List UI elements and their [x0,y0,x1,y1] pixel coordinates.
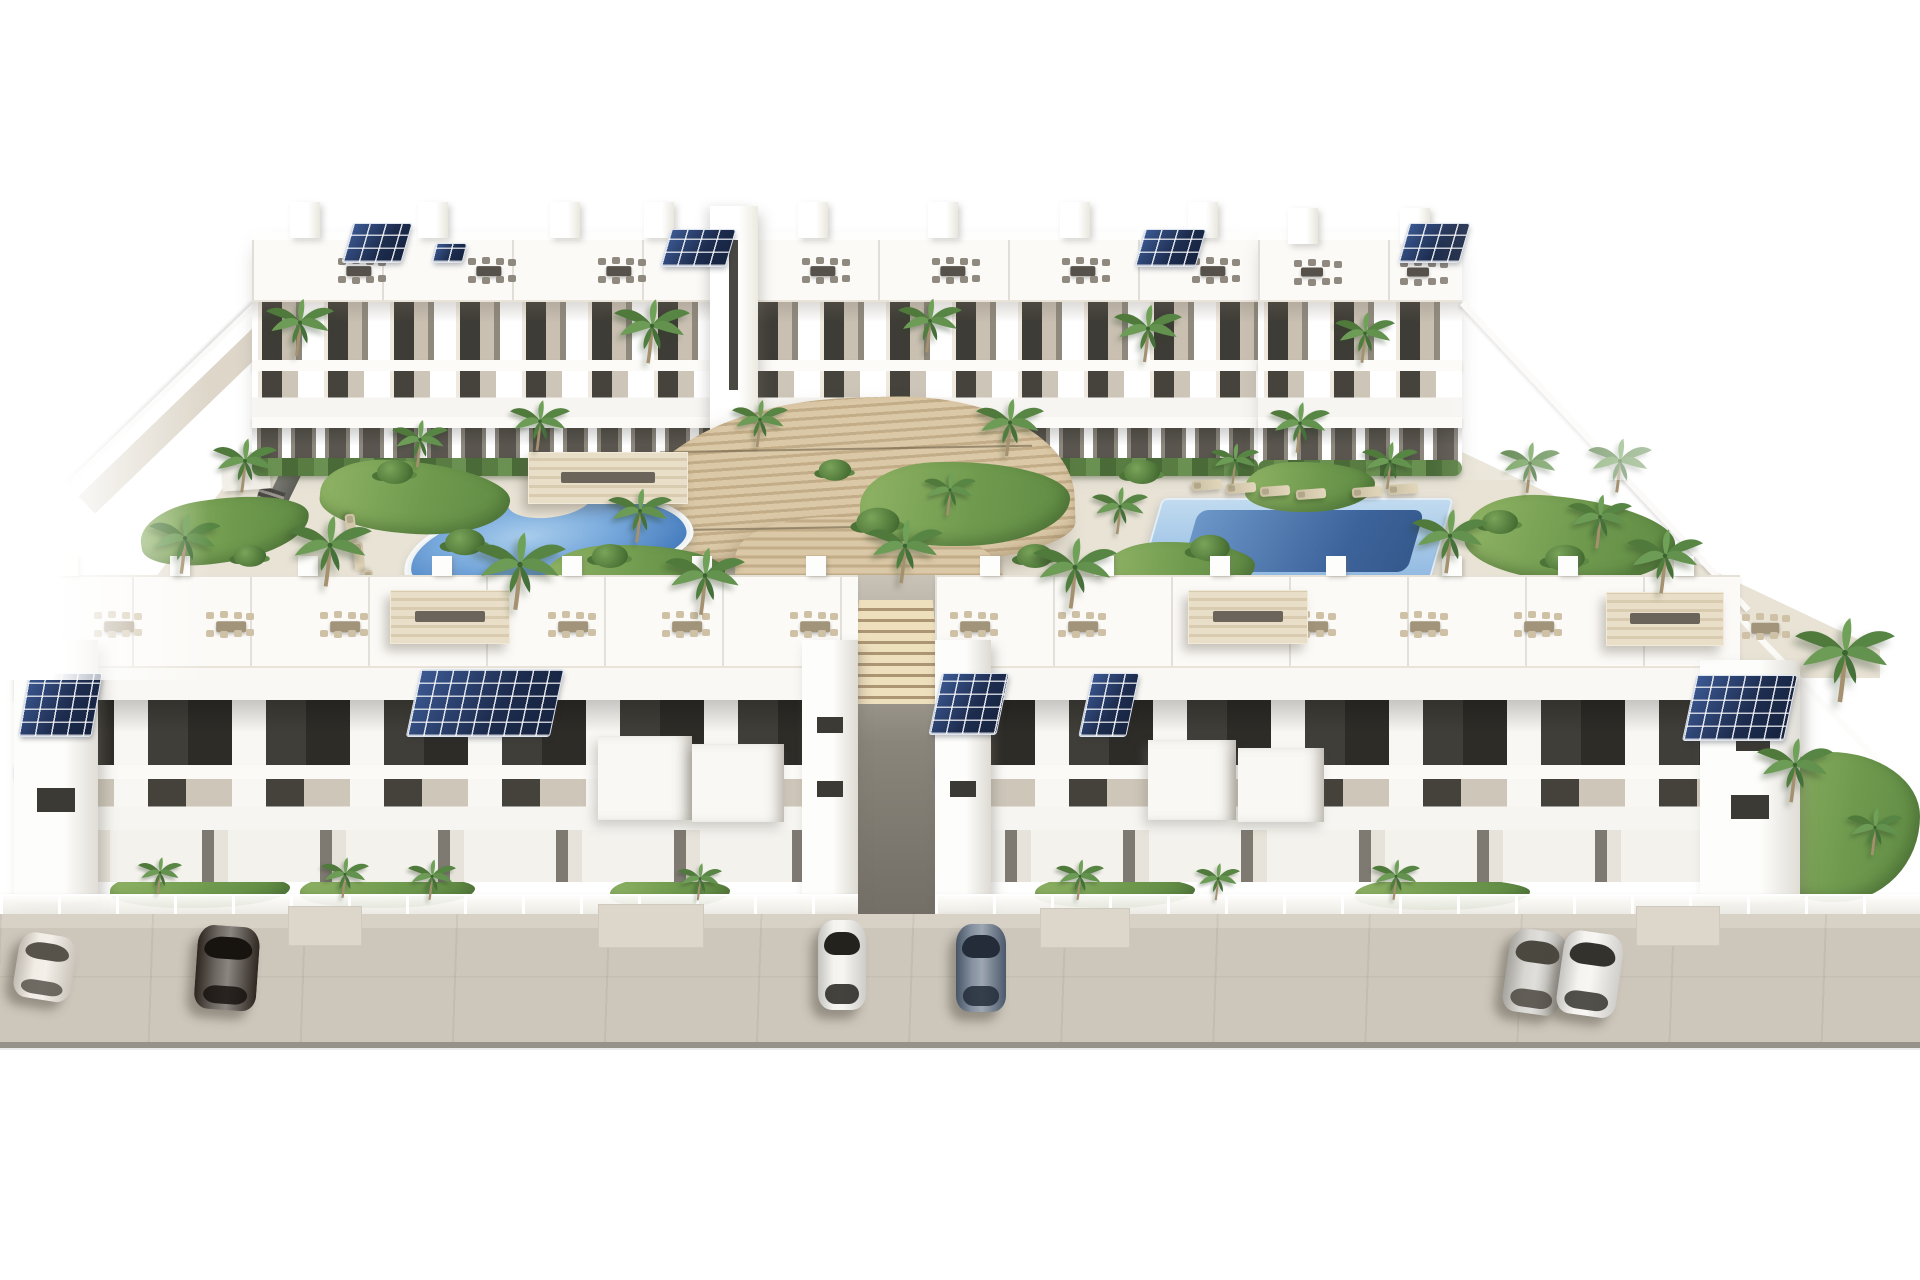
palm-tree [923,470,978,518]
palm-tree-icon [606,487,673,546]
palm-tree-icon [1210,442,1260,486]
palm-tree [974,397,1045,460]
alley-tower-left [802,640,858,912]
palm-tree [1334,311,1397,367]
lower-floor-balconies [935,779,1740,830]
parked-car [818,920,866,1010]
palm-tree [1371,858,1421,902]
terrace-dining-set [1398,612,1452,642]
solar-panel-array [407,670,563,736]
parked-car [11,930,79,1004]
terrace-dining-set [800,258,846,284]
palm-tree [286,513,374,591]
palm-tree-icon [1055,858,1105,902]
palm-tree [606,487,673,546]
terrace-dining-set [1056,612,1110,642]
palm-tree-icon [677,862,723,903]
terrace-dining-set [466,258,512,284]
shrub [592,544,628,568]
parked-car [956,924,1006,1012]
terrace-dining-set [1512,612,1566,642]
solar-panel-array [930,674,1009,734]
driveway-apron [598,904,704,948]
palm-tree-icon [1112,303,1183,366]
palm-tree [896,297,963,356]
palm-tree [264,297,335,360]
floor-slab [935,765,1740,779]
shrub [819,459,851,481]
palm-tree [731,398,790,450]
palm-tree [612,297,692,367]
palm-tree-icon [1793,615,1898,708]
palm-tree-icon [286,513,374,591]
driveway-apron [1040,908,1130,948]
palm-tree-icon [472,530,569,615]
roof-chimney [1326,556,1346,576]
terrace-dining-set [1060,258,1106,284]
palm-tree-icon [612,297,692,367]
pergola-canopy [1188,590,1308,644]
architectural-rendering-scene [0,0,1920,1280]
sun-lounger [1260,485,1291,497]
palm-tree [1195,862,1241,903]
solar-panel-array [19,674,102,736]
terrace-dining-set [318,612,372,642]
palm-tree [407,858,457,902]
solar-panel-array [1683,676,1797,740]
palm-tree-icon [320,856,370,900]
palm-tree-icon [731,398,790,450]
parked-car [193,924,261,1012]
roof-parapet-band [935,668,1740,700]
palm-tree-icon [1031,535,1119,613]
palm-tree [472,530,569,615]
driveway-apron [288,906,362,946]
palm-tree [1566,493,1633,552]
palm-tree [663,545,747,619]
roof-chimney [1558,556,1578,576]
upper-floor-balconies [935,700,1740,765]
palm-tree [391,418,450,470]
entrance-volume [1148,740,1236,820]
palm-tree-icon [1846,806,1905,858]
palm-tree [320,856,370,900]
shrub [234,545,266,567]
palm-tree [1361,440,1420,492]
palm-tree-icon [1625,527,1705,597]
palm-tree [1031,535,1119,613]
terrace-dining-set [1292,260,1332,284]
palm-tree-icon [896,297,963,356]
palm-tree [1269,401,1332,457]
solar-panel-array [343,224,412,262]
palm-tree [1625,527,1705,597]
palm-tree-icon [407,858,457,902]
palm-tree-icon [1755,736,1835,806]
entrance-volume [1238,748,1324,822]
palm-tree [509,399,572,455]
solar-panel-array [432,244,466,262]
palm-tree [1793,615,1898,708]
entrance-volume [598,736,692,820]
roof-chimney [980,556,1000,576]
palm-tree-icon [264,297,335,360]
palm-tree [1410,507,1490,577]
palm-tree [211,437,278,496]
palm-tree-icon [663,545,747,619]
street-curb-edge [0,1042,1920,1048]
solar-panel-array [661,230,735,266]
palm-tree [1112,303,1183,366]
palm-tree-icon [1371,858,1421,902]
terrace-dining-set [546,612,600,642]
palm-tree-icon [1361,440,1420,492]
palm-tree [137,856,183,897]
palm-tree-icon [974,397,1045,460]
rooftop-stair-tower [1288,208,1318,244]
floor-slab [252,417,718,428]
palm-tree-icon [1091,485,1150,537]
palm-tree [1055,858,1105,902]
solar-panel-array [1135,230,1205,266]
entrance-volume [692,744,784,822]
palm-tree-icon [1195,862,1241,903]
wooden-stairs [850,600,942,704]
palm-tree [677,862,723,903]
middle-floor-balconies [252,371,718,417]
palm-tree [1210,442,1260,486]
palm-tree-icon [865,517,945,587]
palm-tree-icon [211,437,278,496]
palm-tree-icon [923,470,978,518]
terrace-dining-set [788,612,842,642]
palm-tree-icon [391,418,450,470]
palm-tree-icon [1410,507,1490,577]
terrace-dining-set [1740,614,1790,642]
parked-car [1554,928,1625,1020]
terrace-dining-set [930,258,976,284]
palm-tree-icon [1334,311,1397,367]
palm-tree [1846,806,1905,858]
palm-tree [1091,485,1150,537]
terrace-dining-set [204,612,258,642]
driveway-apron [1636,906,1720,946]
palm-tree-icon [137,856,183,897]
sun-lounger [1296,488,1327,500]
roof-chimney [432,556,452,576]
palm-tree [1755,736,1835,806]
roof-chimney [1210,556,1230,576]
palm-tree-icon [509,399,572,455]
shrub [1124,460,1160,484]
roof-chimney [806,556,826,576]
white-fade-top-right [1430,150,1920,480]
terrace-dining-set [596,258,642,284]
palm-tree-icon [1269,401,1332,457]
palm-tree-icon [1566,493,1633,552]
terrace-dining-set [948,612,1002,642]
white-fade-left [0,280,210,680]
palm-tree [865,517,945,587]
terrace-dining-set [1190,258,1236,284]
pergola-canopy [1606,592,1724,646]
